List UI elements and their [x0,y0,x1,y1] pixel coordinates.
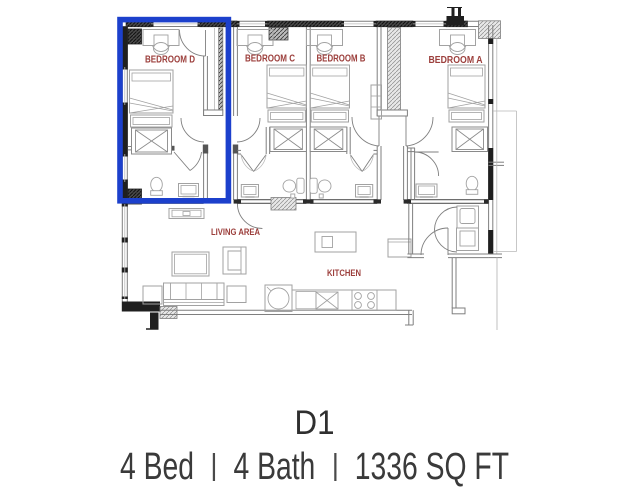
svg-text:KITCHEN: KITCHEN [327,268,361,279]
svg-text:BEDROOM B: BEDROOM B [317,54,366,65]
svg-text:LIVING AREA: LIVING AREA [211,227,260,238]
svg-text:BEDROOM A: BEDROOM A [429,55,483,66]
svg-text:BEDROOM C: BEDROOM C [245,54,295,65]
svg-text:BEDROOM D: BEDROOM D [145,55,195,66]
